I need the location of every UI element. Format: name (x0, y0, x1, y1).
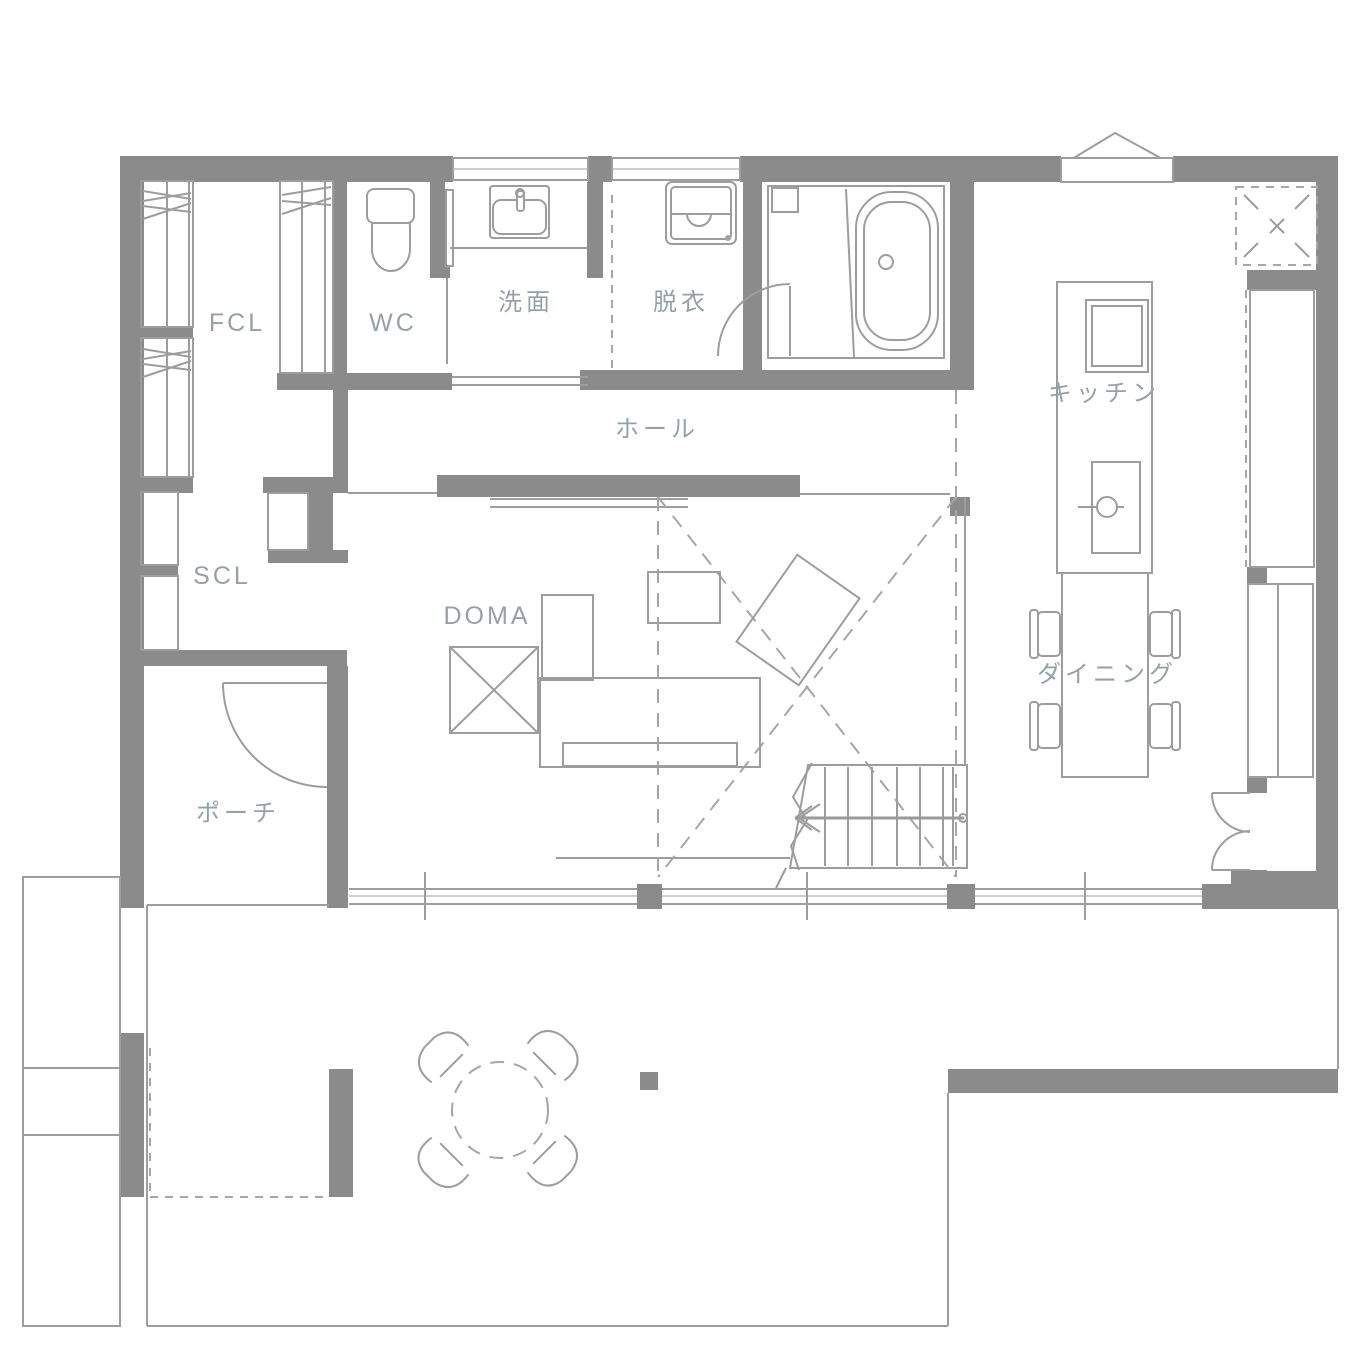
floor-plan-page: FCL WC 洗面 脱衣 ホール キッチン SCL DOMA ダイニング ポーチ (0, 0, 1360, 1360)
terrace-table-and-chairs (410, 1022, 586, 1196)
entrance-door (223, 683, 327, 787)
right-storage (1248, 584, 1313, 777)
label-hall: ホール (615, 416, 699, 443)
kitchen-back-counter (1246, 290, 1314, 567)
label-scl: SCL (193, 562, 251, 590)
label-dining: ダイニング (1037, 661, 1177, 688)
washroom-sliding-door (452, 377, 588, 385)
floor-plan-drawing: FCL WC 洗面 脱衣 ホール キッチン SCL DOMA ダイニング ポーチ (0, 0, 1360, 1360)
vanity-sink-icon (450, 186, 587, 248)
pantry-hatch-icon (1236, 187, 1317, 265)
label-doma: DOMA (444, 602, 531, 630)
label-datsui: 脱衣 (653, 289, 709, 316)
label-porch: ポーチ (196, 800, 280, 827)
roof-vent-icon (1061, 133, 1173, 182)
staircase (790, 763, 967, 870)
high-window-datsui (612, 158, 740, 180)
label-kitchen: キッチン (1048, 380, 1160, 407)
washing-machine-icon (666, 182, 736, 244)
high-window-washroom (453, 158, 588, 180)
terrace-outline (23, 877, 1338, 1326)
label-senmen: 洗面 (498, 289, 554, 316)
toilet-icon (367, 189, 414, 271)
label-fcl: FCL (209, 309, 265, 337)
south-windows (349, 872, 1202, 920)
doma-furniture (450, 555, 860, 767)
label-wc: WC (369, 309, 417, 337)
void-outline-dashed (658, 390, 956, 877)
storage-double-doors (1212, 793, 1250, 870)
kitchen-island (1057, 282, 1152, 573)
